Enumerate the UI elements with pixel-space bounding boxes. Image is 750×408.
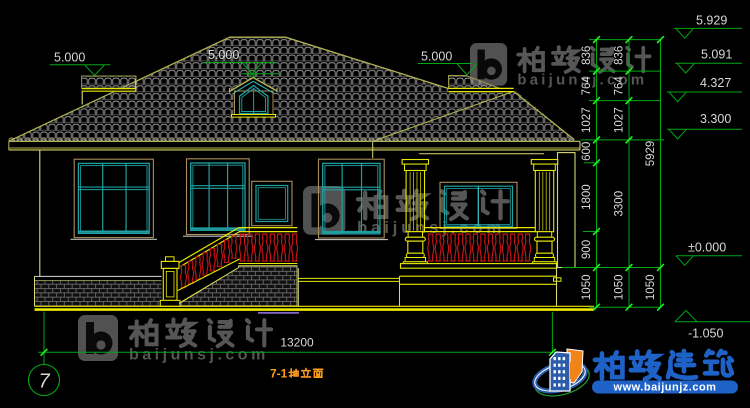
- svg-text:764: 764: [614, 76, 626, 96]
- svg-text:1050: 1050: [614, 275, 626, 301]
- svg-text:1050: 1050: [645, 275, 657, 301]
- svg-text:600: 600: [581, 142, 593, 161]
- svg-text:836: 836: [614, 46, 626, 65]
- svg-text:5.091: 5.091: [701, 48, 732, 62]
- svg-text:3.300: 3.300: [700, 112, 731, 126]
- svg-text:764: 764: [581, 76, 593, 96]
- svg-text:baijunsj.com: baijunsj.com: [129, 347, 269, 364]
- svg-text:www.baijunjz.com: www.baijunjz.com: [613, 382, 717, 394]
- svg-text:5929: 5929: [645, 141, 657, 167]
- svg-text:1027: 1027: [614, 107, 626, 133]
- svg-text:±0.000: ±0.000: [688, 241, 726, 255]
- svg-text:4.327: 4.327: [700, 76, 731, 90]
- svg-text:3300: 3300: [614, 191, 626, 217]
- svg-text:1027: 1027: [581, 107, 593, 133]
- svg-text:-1.050: -1.050: [688, 327, 723, 341]
- svg-text:900: 900: [581, 240, 593, 259]
- svg-text:5.000: 5.000: [54, 51, 85, 65]
- svg-text:7-1: 7-1: [270, 367, 288, 381]
- svg-text:5.000: 5.000: [208, 48, 239, 62]
- svg-text:5.929: 5.929: [696, 14, 727, 28]
- svg-text:836: 836: [581, 46, 593, 65]
- svg-text:5.000: 5.000: [421, 50, 452, 64]
- svg-text:1800: 1800: [581, 184, 593, 210]
- svg-text:7: 7: [38, 371, 50, 393]
- svg-text:1050: 1050: [581, 275, 593, 301]
- svg-text:13200: 13200: [280, 335, 314, 349]
